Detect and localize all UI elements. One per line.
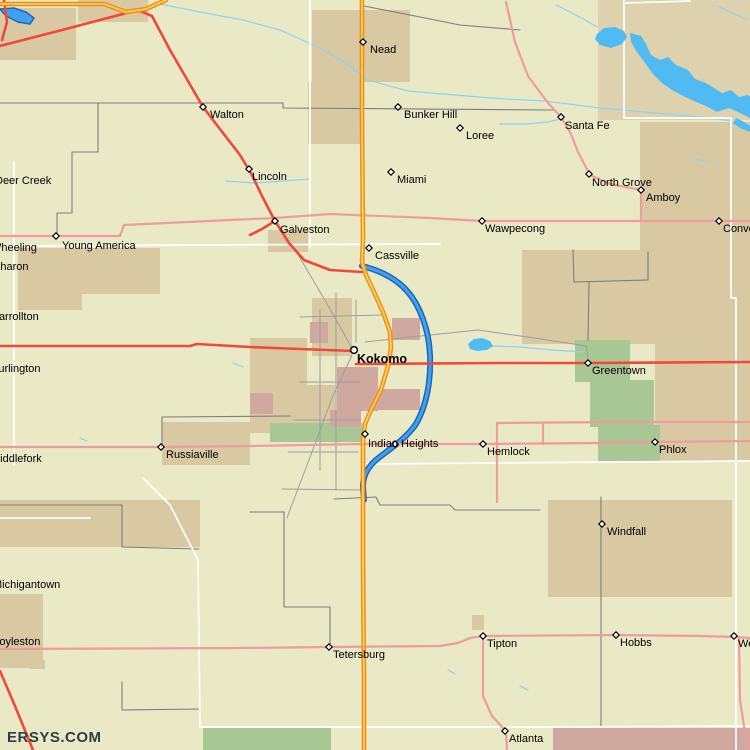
town-label-galveston: Galveston — [280, 224, 330, 236]
town-label-walton: Walton — [210, 109, 244, 121]
town-boyleston: Boyleston — [0, 636, 40, 648]
watermark-text: ERSYS.COM — [7, 729, 102, 746]
town-label-lincoln: Lincoln — [252, 171, 287, 183]
town-label-tetersburg: Tetersburg — [333, 649, 385, 661]
town-label-cassville: Cassville — [375, 250, 419, 262]
town-label-wawpecong: Wawpecong — [485, 223, 545, 235]
town-label-greentown: Greentown — [592, 365, 646, 377]
town-sharon: Sharon — [0, 261, 28, 273]
town-label-young-america: Young America — [62, 240, 136, 252]
town-label-miami: Miami — [397, 174, 426, 186]
town-carrollton: Carrollton — [0, 311, 39, 323]
town-middlefork: Middlefork — [0, 453, 42, 465]
town-label-amboy: Amboy — [646, 192, 681, 204]
town-label-wheeling: Wheeling — [0, 242, 37, 254]
town-label-carrollton: Carrollton — [0, 311, 39, 323]
town-label-bunker-hill: Bunker Hill — [404, 109, 457, 121]
town-burlington: Burlington — [0, 363, 41, 375]
town-label-nead: Nead — [370, 44, 396, 56]
town-label-north-grove: North Grove — [592, 177, 652, 189]
town-label-tipton: Tipton — [487, 638, 517, 650]
town-label-phlox: Phlox — [659, 444, 687, 456]
town-label-sharon: Sharon — [0, 261, 28, 273]
town-label-kokomo: Kokomo — [357, 352, 407, 366]
town-label-boyleston: Boyleston — [0, 636, 40, 648]
town-label-loree: Loree — [466, 130, 494, 142]
town-label-deer-creek: Deer Creek — [0, 175, 52, 187]
town-label-indian-heights: Indian Heights — [368, 438, 439, 450]
town-label-middlefork: Middlefork — [0, 453, 42, 465]
town-label-burlington: Burlington — [0, 363, 41, 375]
map-svg: NeadWaltonBunker HillLoreeSanta FeMiamiN… — [0, 0, 750, 750]
town-wheeling: Wheeling — [0, 242, 37, 254]
town-michigantown: Michigantown — [0, 579, 60, 591]
town-label-michigantown: Michigantown — [0, 579, 60, 591]
town-label-hobbs: Hobbs — [620, 637, 652, 649]
town-deer-creek: Deer Creek — [0, 175, 52, 187]
map-canvas[interactable]: NeadWaltonBunker HillLoreeSanta FeMiamiN… — [0, 0, 750, 750]
town-label-atlanta: Atlanta — [509, 733, 544, 745]
town-label-hemlock: Hemlock — [487, 446, 530, 458]
town-label-windfall: Windfall — [607, 526, 646, 538]
town-label-santa-fe: Santa Fe — [565, 120, 610, 132]
town-label-russiaville: Russiaville — [166, 449, 219, 461]
town-label-converse: Converse — [723, 223, 750, 235]
town-label-west-liberty: West Liberty — [738, 638, 750, 650]
